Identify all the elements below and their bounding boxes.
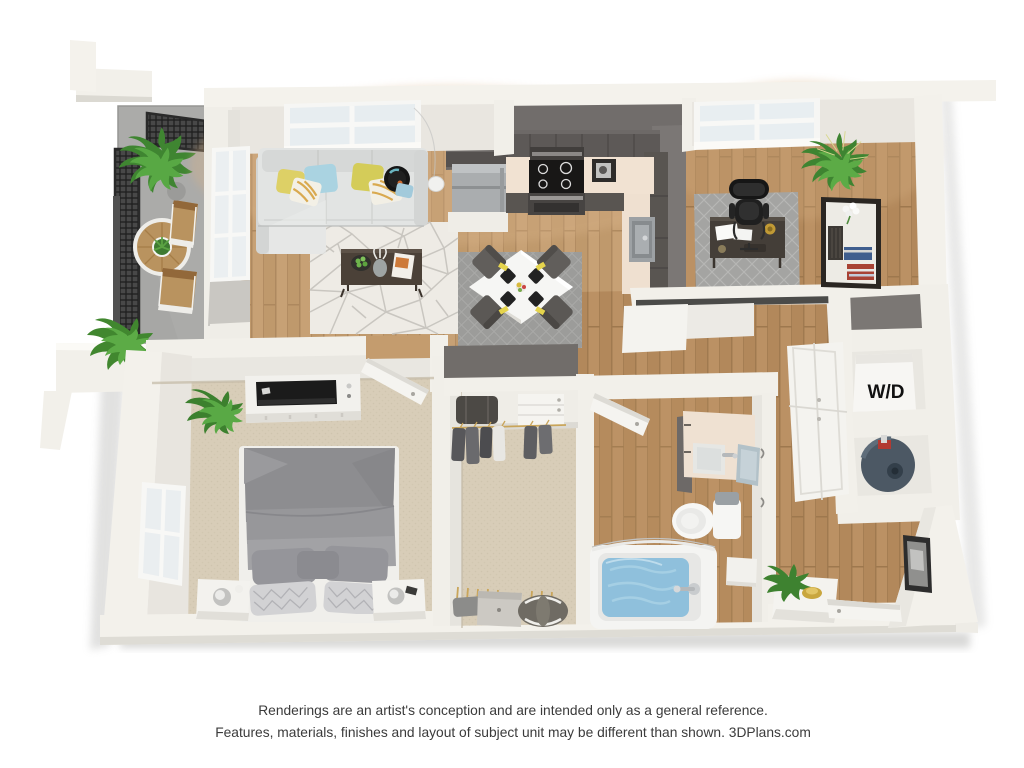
svg-text:W/D: W/D: [868, 382, 905, 403]
svg-text:Features, materials, finishes: Features, materials, finishes and layout…: [215, 725, 811, 740]
svg-text:Renderings are an artist's con: Renderings are an artist's conception an…: [258, 703, 768, 718]
